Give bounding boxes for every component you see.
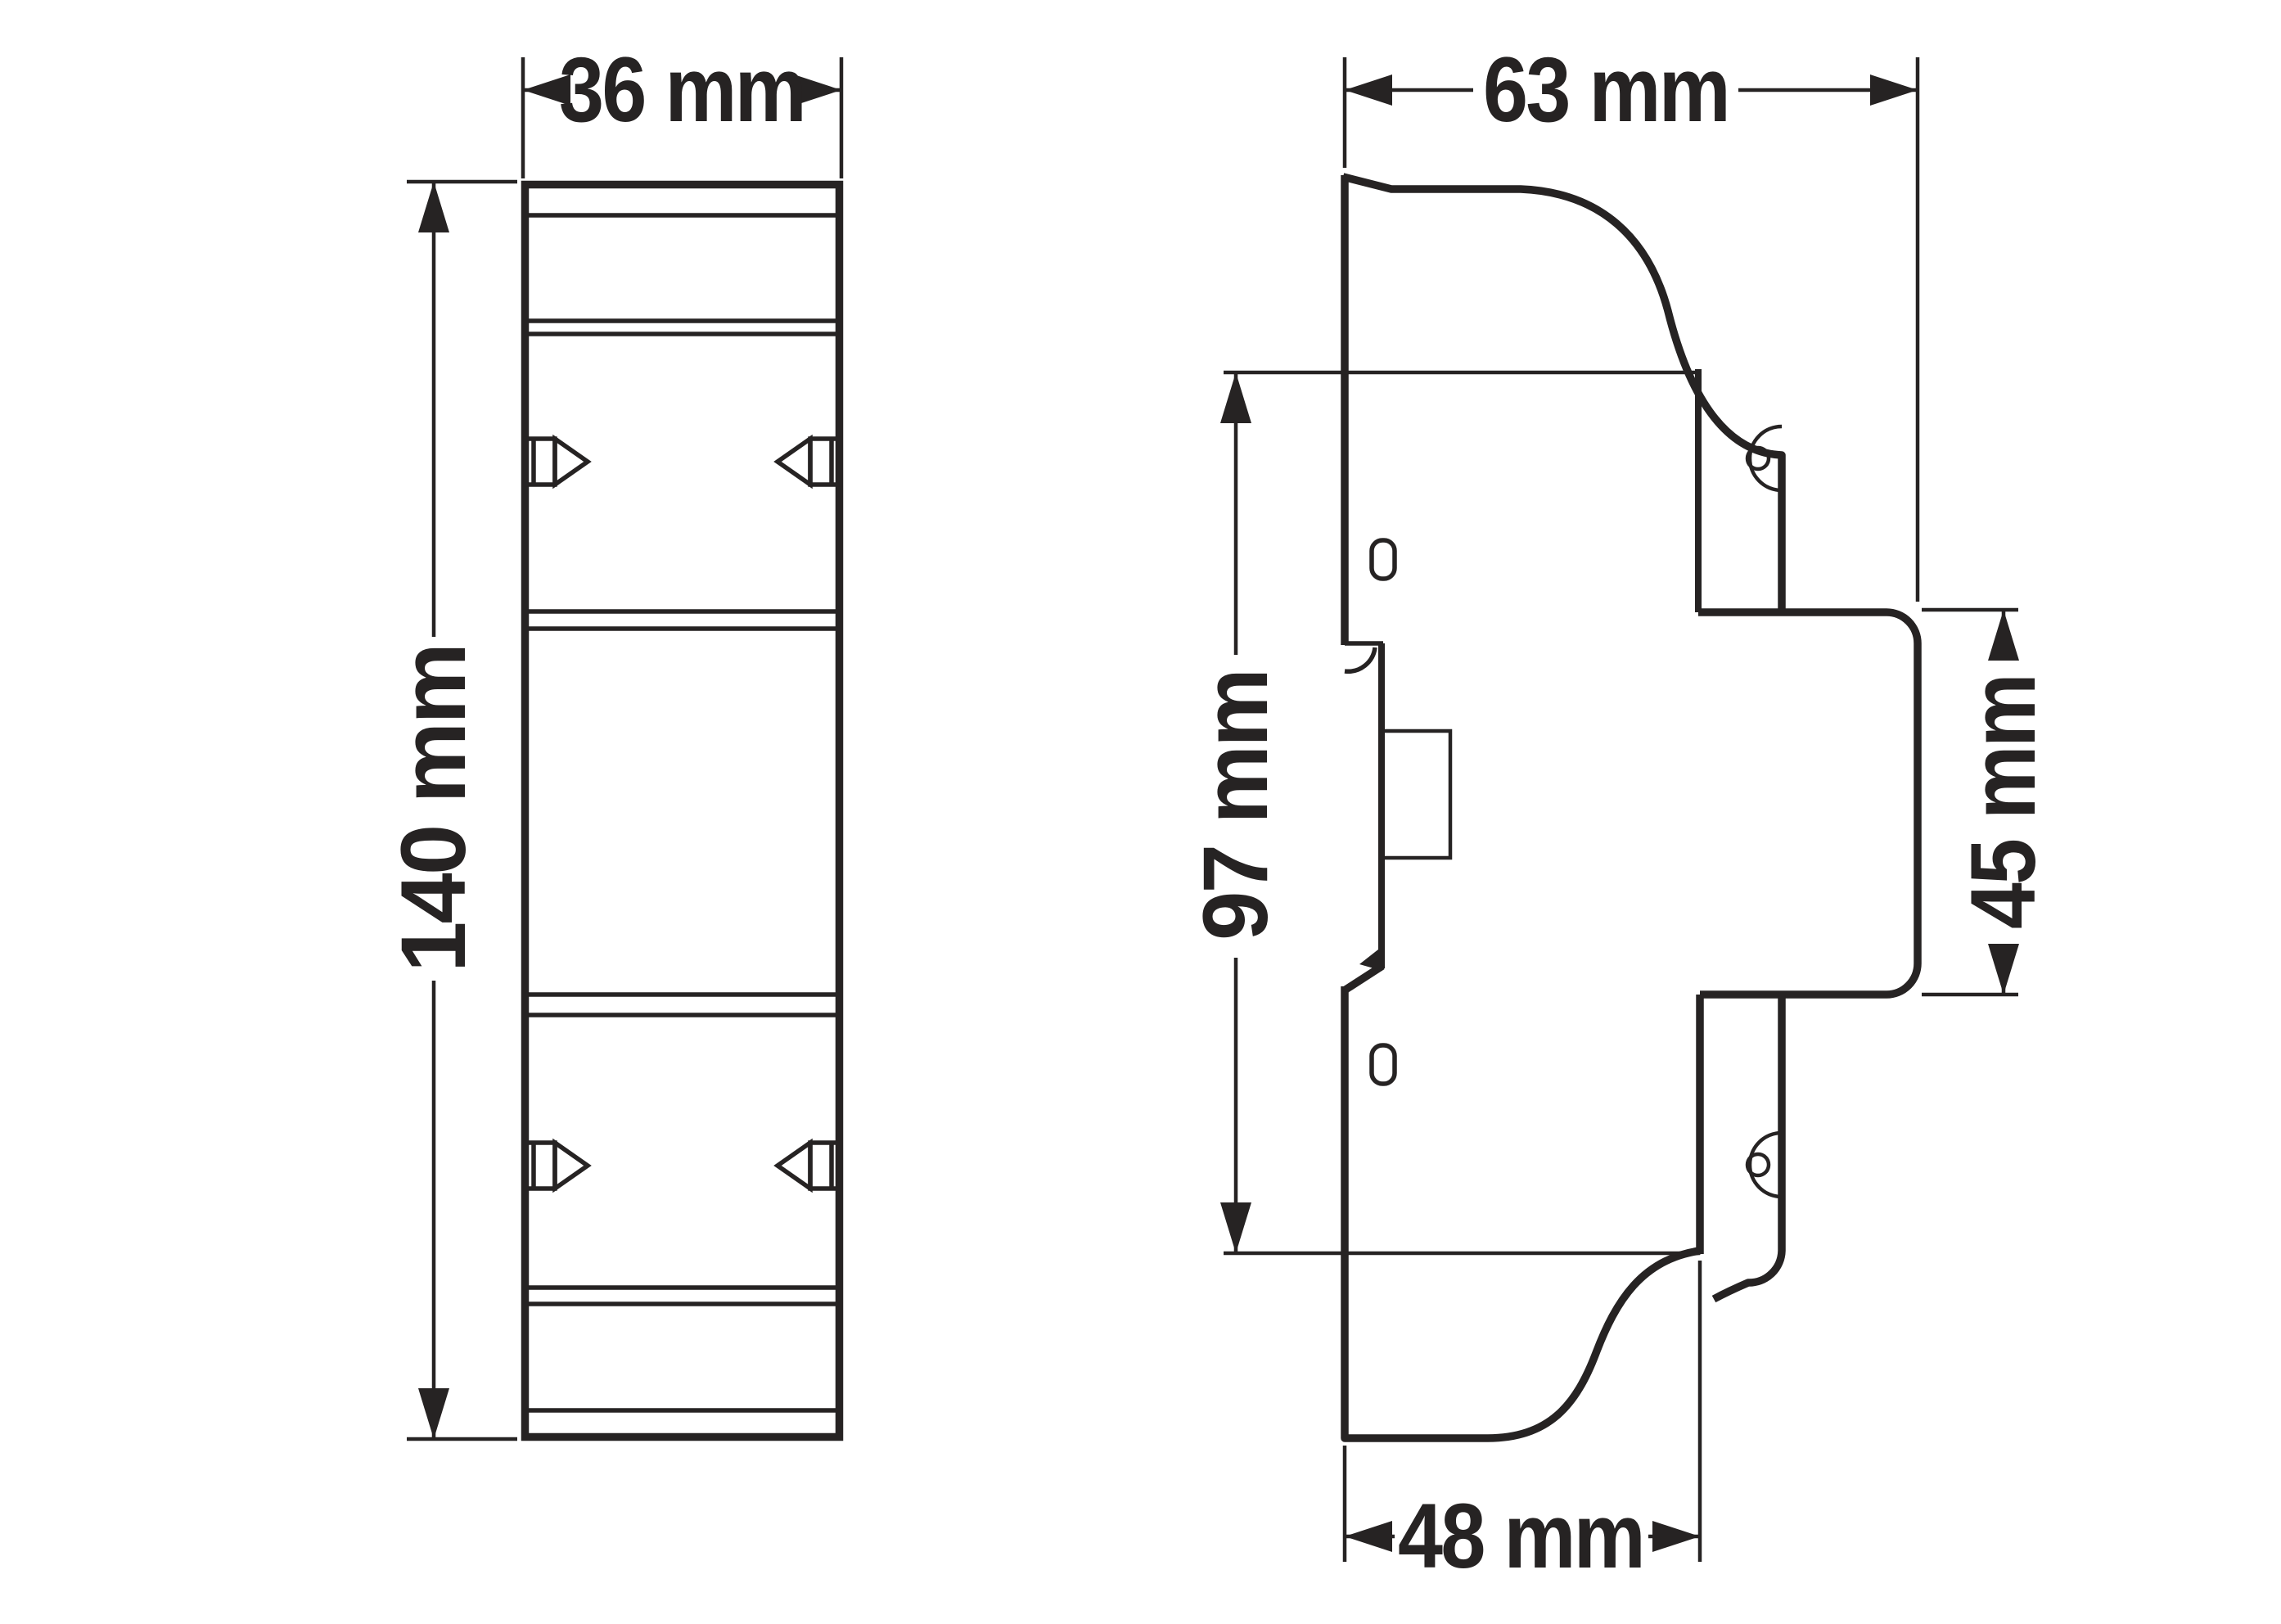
clip-top-right-icon [778,439,840,485]
rail-claw-fillet [1345,647,1375,671]
clip-bottom-left-icon [525,1143,588,1189]
side-terminal-tab [1714,995,1782,1299]
front-view [525,185,841,1437]
front-panel-height-label: 45 mm [1952,675,2054,929]
dimension-side-depth: 63 mm [1345,38,1918,602]
arrowhead-down-icon [418,1388,449,1439]
vent-slot-bottom [1372,1045,1395,1084]
seal-screw-bottom-icon [1747,1133,1782,1197]
din-section-height-label: 97 mm [1184,670,1287,941]
front-view-panel-lines [528,215,836,1410]
vent-slot-top [1372,540,1395,579]
arrowhead-down-icon [1988,944,2019,995]
arrowhead-right-icon [1870,74,1918,106]
dimension-front-panel-height: 45 mm [1922,610,2054,995]
arrowhead-right-icon [1652,1521,1700,1552]
arrowhead-up-icon [418,182,449,232]
side-front-panel [1698,612,1918,995]
rail-clip-tooth [1359,946,1382,971]
side-top-cap [1343,177,1782,612]
arrowhead-left-icon [1345,74,1392,106]
clip-top-left-icon [525,439,588,485]
arrowhead-down-icon [1220,1202,1251,1253]
side-depth-label: 63 mm [1483,38,1729,141]
clip-bottom-right-icon [778,1143,840,1189]
side-view [1343,175,1918,1438]
front-view-outline [525,185,840,1437]
arrowhead-left-icon [1345,1521,1392,1552]
rail-spring-clip [1343,966,1382,991]
dimension-drawing: 36 mm 140 mm 63 mm 97 mm [0,0,2281,1624]
side-bottom-cap [1345,986,1700,1438]
base-depth-label: 48 mm [1398,1485,1643,1587]
din-rail-profile [1382,731,1450,858]
dimension-front-height: 140 mm [382,182,517,1439]
technical-drawing-page: 36 mm 140 mm 63 mm 97 mm [0,0,2281,1624]
dimension-din-section-height: 97 mm [1184,372,1700,1253]
din-rail-slot [1343,643,1450,991]
dimension-front-width: 36 mm [523,38,841,178]
front-width-label: 36 mm [559,38,805,141]
arrowhead-up-icon [1988,610,2019,661]
dimension-base-depth: 48 mm [1345,1261,1700,1587]
arrowhead-up-icon [1220,372,1251,423]
front-height-label: 140 mm [382,645,485,972]
